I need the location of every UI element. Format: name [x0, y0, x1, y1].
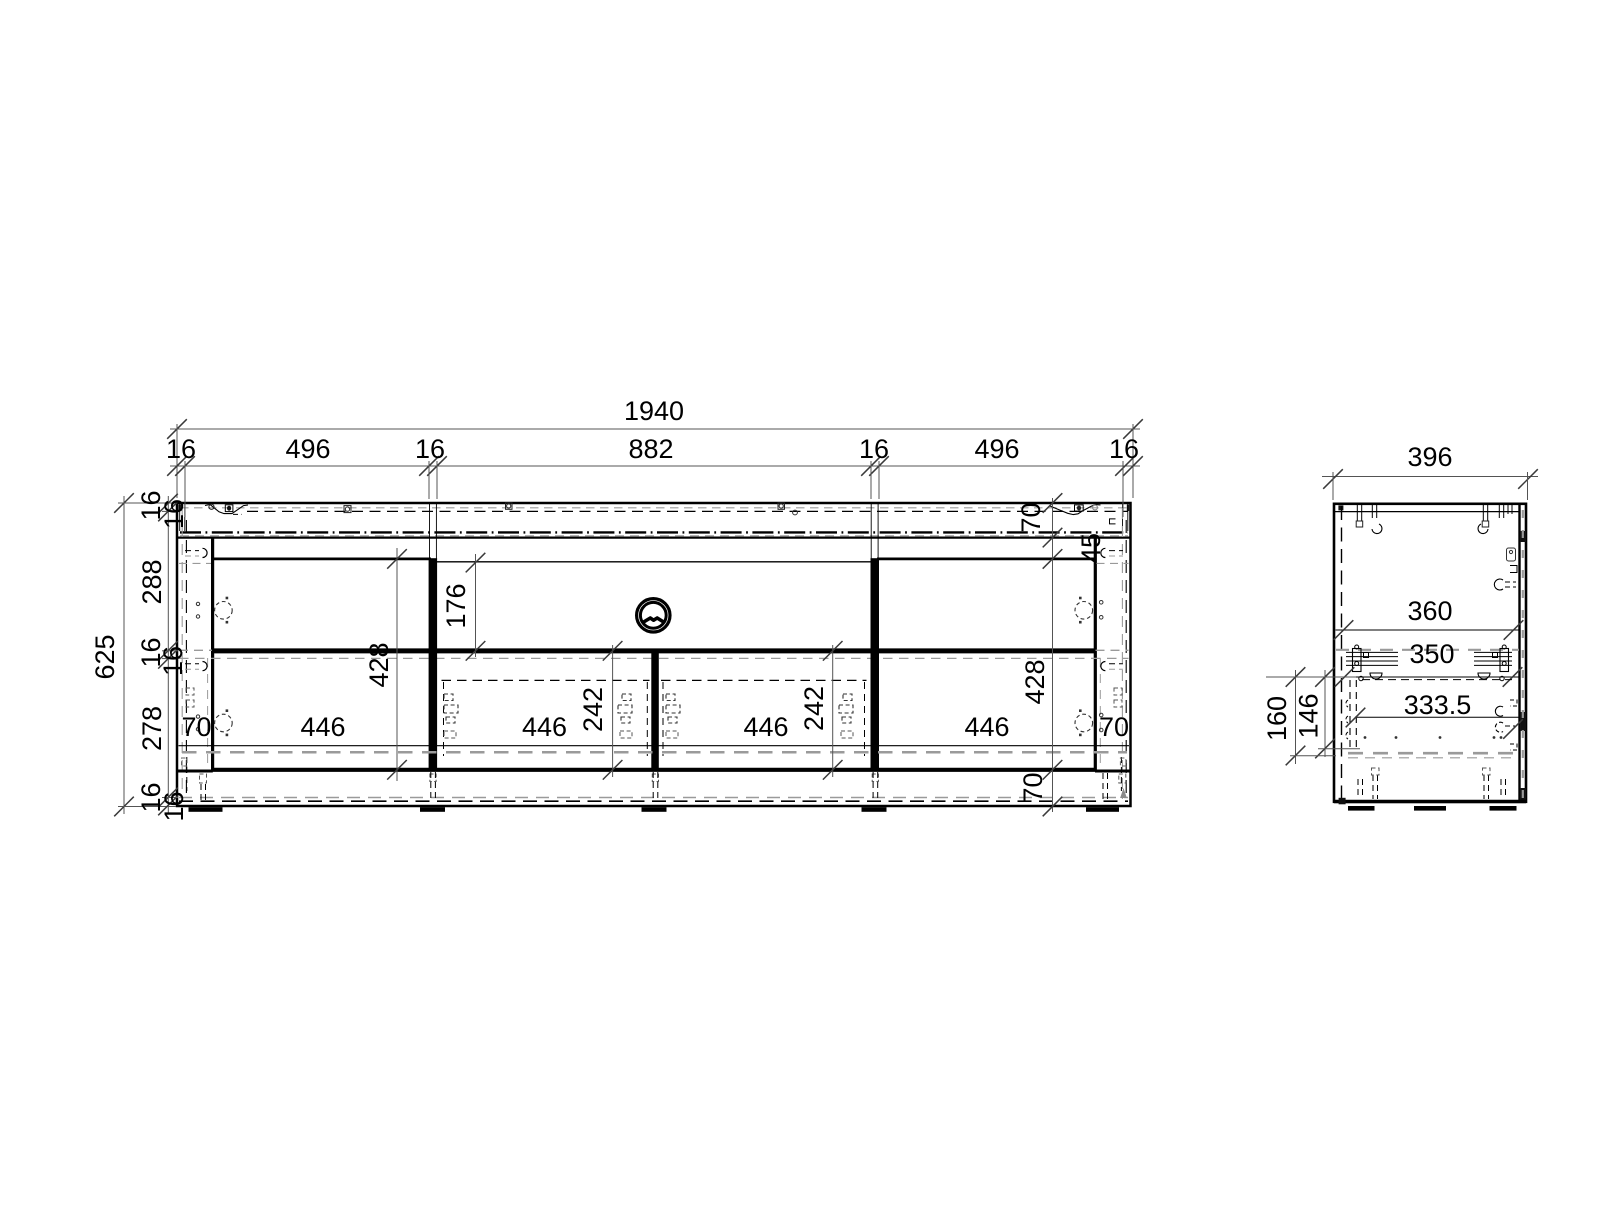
- svg-text:428: 428: [1020, 659, 1050, 704]
- svg-text:446: 446: [522, 712, 567, 742]
- svg-text:496: 496: [974, 434, 1019, 464]
- svg-text:396: 396: [1407, 442, 1452, 472]
- svg-text:16: 16: [159, 499, 189, 529]
- svg-text:146: 146: [1294, 693, 1324, 738]
- svg-text:70: 70: [1099, 712, 1129, 742]
- svg-text:242: 242: [578, 687, 608, 732]
- svg-text:70: 70: [181, 712, 211, 742]
- svg-text:625: 625: [90, 634, 120, 679]
- svg-text:360: 360: [1407, 596, 1452, 626]
- svg-text:70: 70: [1018, 772, 1048, 802]
- svg-text:160: 160: [1262, 696, 1292, 741]
- svg-text:333.5: 333.5: [1404, 690, 1472, 720]
- svg-text:446: 446: [300, 712, 345, 742]
- svg-text:176: 176: [441, 583, 471, 628]
- svg-text:16: 16: [859, 434, 889, 464]
- svg-text:882: 882: [628, 434, 673, 464]
- svg-text:428: 428: [364, 642, 394, 687]
- svg-text:446: 446: [964, 712, 1009, 742]
- svg-text:446: 446: [743, 712, 788, 742]
- svg-text:16: 16: [166, 434, 196, 464]
- svg-text:16: 16: [415, 434, 445, 464]
- svg-text:350: 350: [1409, 639, 1454, 669]
- svg-text:1940: 1940: [624, 396, 684, 426]
- svg-text:16: 16: [159, 791, 189, 821]
- svg-text:16: 16: [158, 646, 188, 676]
- svg-text:70: 70: [1016, 502, 1046, 532]
- svg-text:288: 288: [137, 559, 167, 604]
- svg-text:496: 496: [285, 434, 330, 464]
- svg-text:16: 16: [1109, 434, 1139, 464]
- svg-text:45: 45: [1076, 533, 1106, 563]
- svg-text:242: 242: [799, 686, 829, 731]
- svg-text:278: 278: [137, 706, 167, 751]
